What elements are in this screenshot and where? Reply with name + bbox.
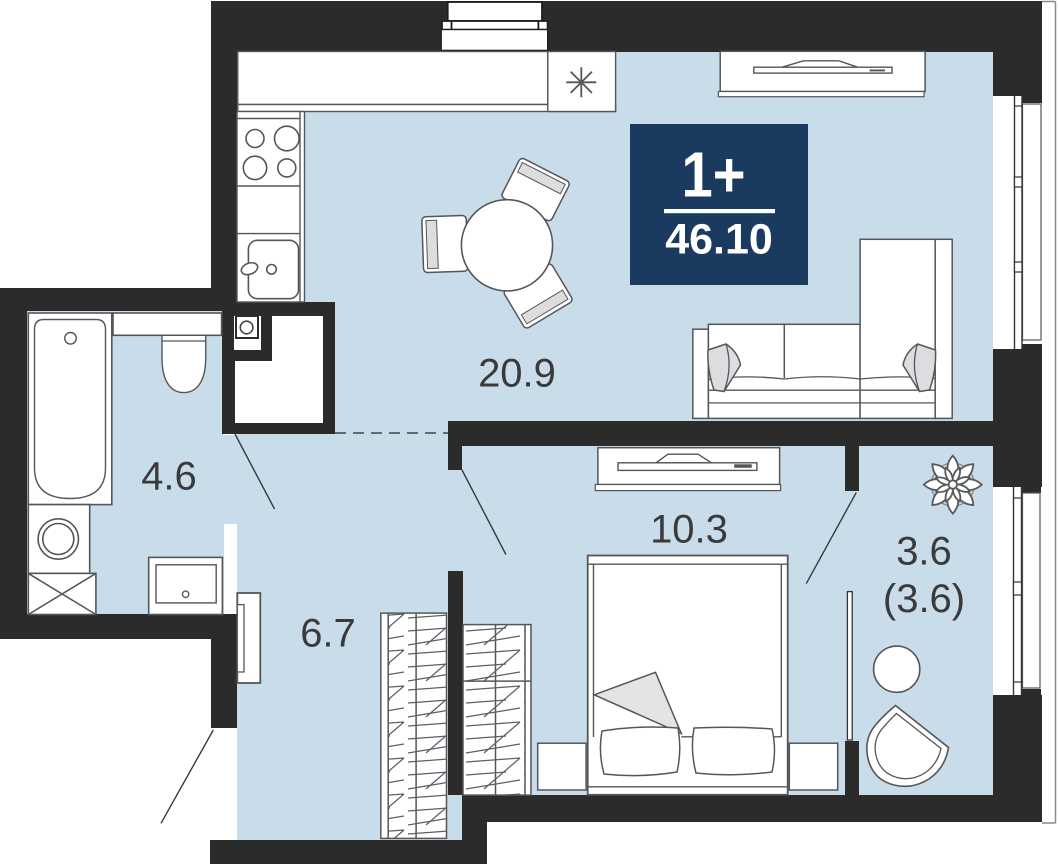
svg-text:3.6: 3.6 bbox=[896, 530, 952, 574]
svg-text:10.3: 10.3 bbox=[650, 508, 728, 552]
svg-text:46.10: 46.10 bbox=[665, 216, 773, 264]
svg-text:20.9: 20.9 bbox=[478, 352, 556, 396]
svg-text:(3.6): (3.6) bbox=[883, 577, 965, 621]
svg-text:1+: 1+ bbox=[682, 139, 746, 211]
svg-text:6.7: 6.7 bbox=[300, 612, 356, 656]
svg-text:4.6: 4.6 bbox=[141, 455, 197, 499]
